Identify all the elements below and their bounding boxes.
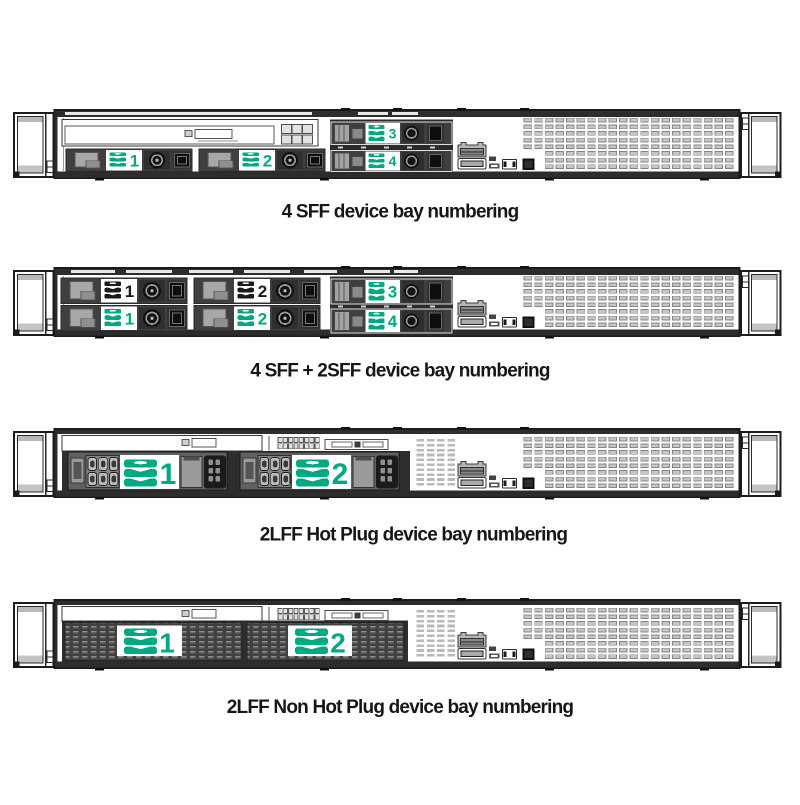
svg-text:1: 1 — [125, 282, 134, 301]
svg-text:4: 4 — [389, 153, 397, 169]
svg-text:1: 1 — [159, 628, 175, 659]
svg-text:3: 3 — [389, 125, 397, 141]
svg-text:4: 4 — [388, 312, 398, 331]
svg-text:2: 2 — [263, 151, 272, 170]
svg-text:2LFF Hot Plug device bay numbe: 2LFF Hot Plug device bay numbering — [260, 525, 568, 546]
svg-text:2LFF Non Hot Plug device bay n: 2LFF Non Hot Plug device bay numbering — [227, 697, 574, 718]
svg-text:2: 2 — [332, 458, 349, 491]
svg-text:1: 1 — [130, 151, 139, 170]
svg-text:2: 2 — [258, 282, 267, 301]
svg-text:2: 2 — [258, 309, 267, 328]
svg-text:4 SFF + 2SFF device bay number: 4 SFF + 2SFF device bay numbering — [250, 361, 550, 382]
svg-text:1: 1 — [160, 458, 177, 491]
svg-text:3: 3 — [388, 283, 397, 302]
svg-text:1: 1 — [125, 309, 134, 328]
svg-text:2: 2 — [330, 628, 346, 659]
svg-text:4 SFF device bay numbering: 4 SFF device bay numbering — [282, 202, 519, 223]
